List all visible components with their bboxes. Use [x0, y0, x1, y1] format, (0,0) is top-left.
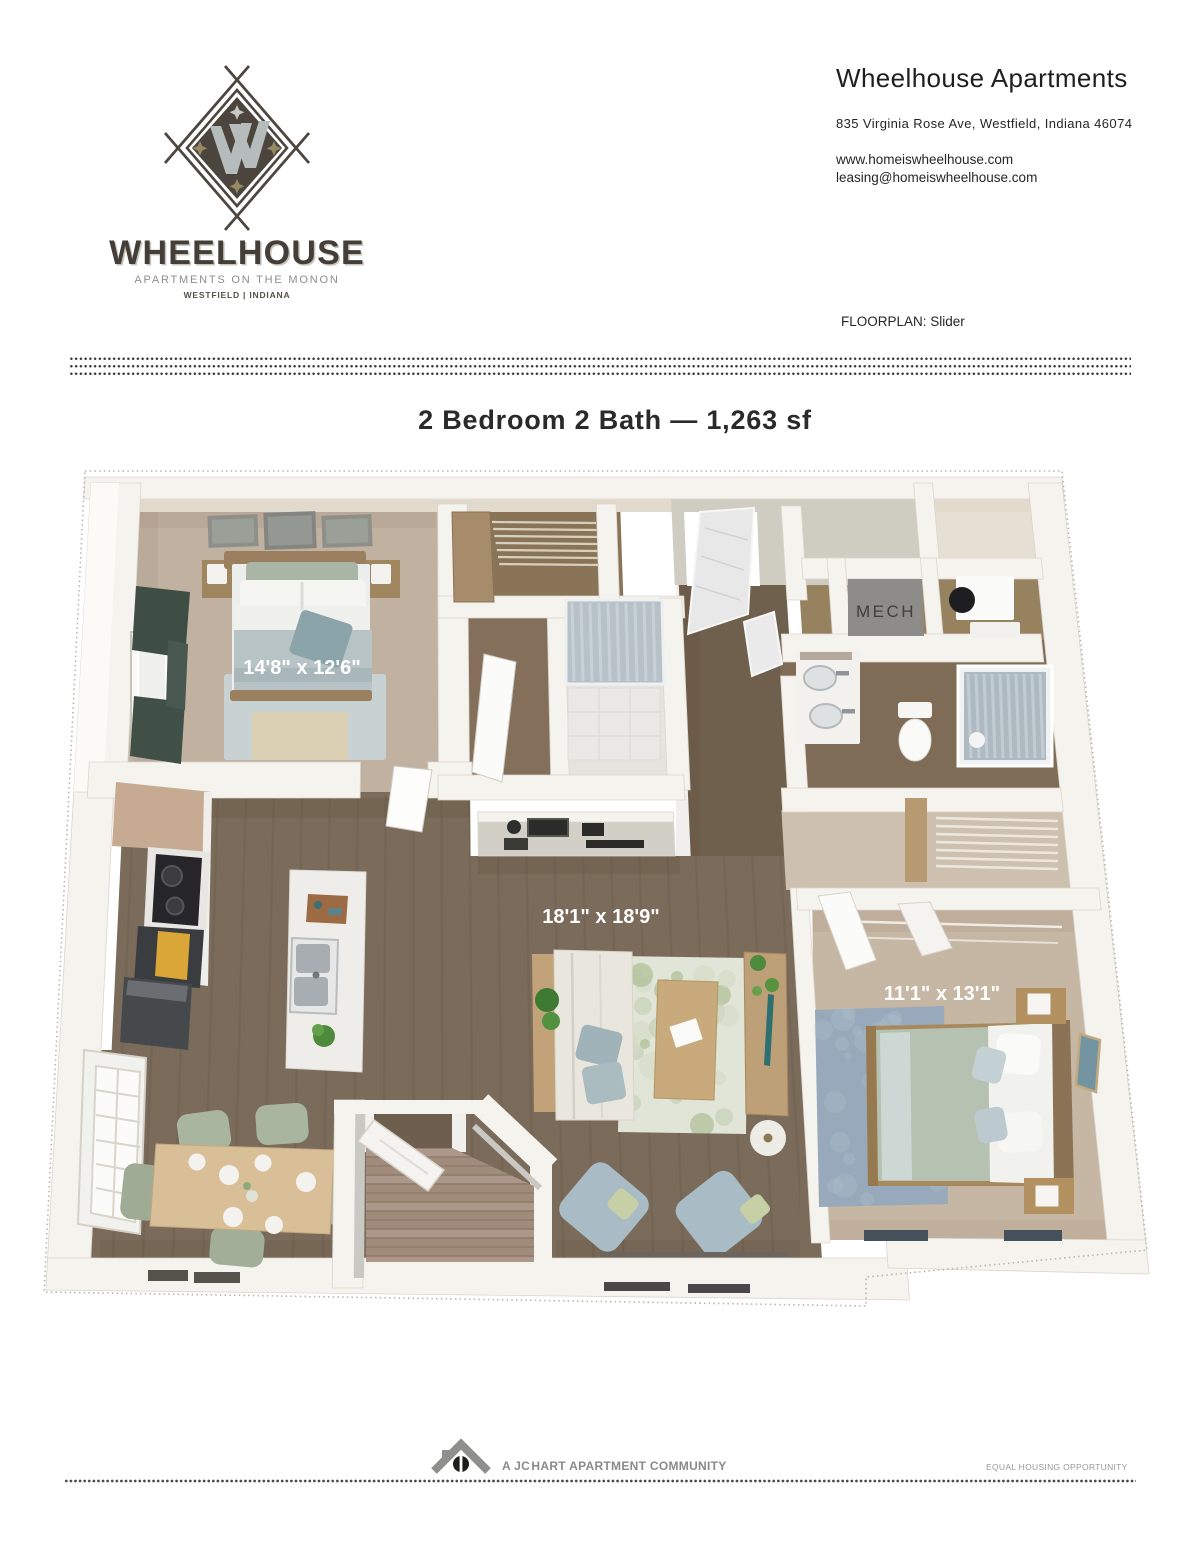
svg-text:18'1" x 18'9": 18'1" x 18'9" — [542, 906, 659, 928]
svg-text:11'1" x 13'1": 11'1" x 13'1" — [884, 983, 1000, 1005]
svg-text:14'8" x 12'6": 14'8" x 12'6" — [243, 657, 360, 679]
svg-text:MECH: MECH — [856, 602, 916, 621]
